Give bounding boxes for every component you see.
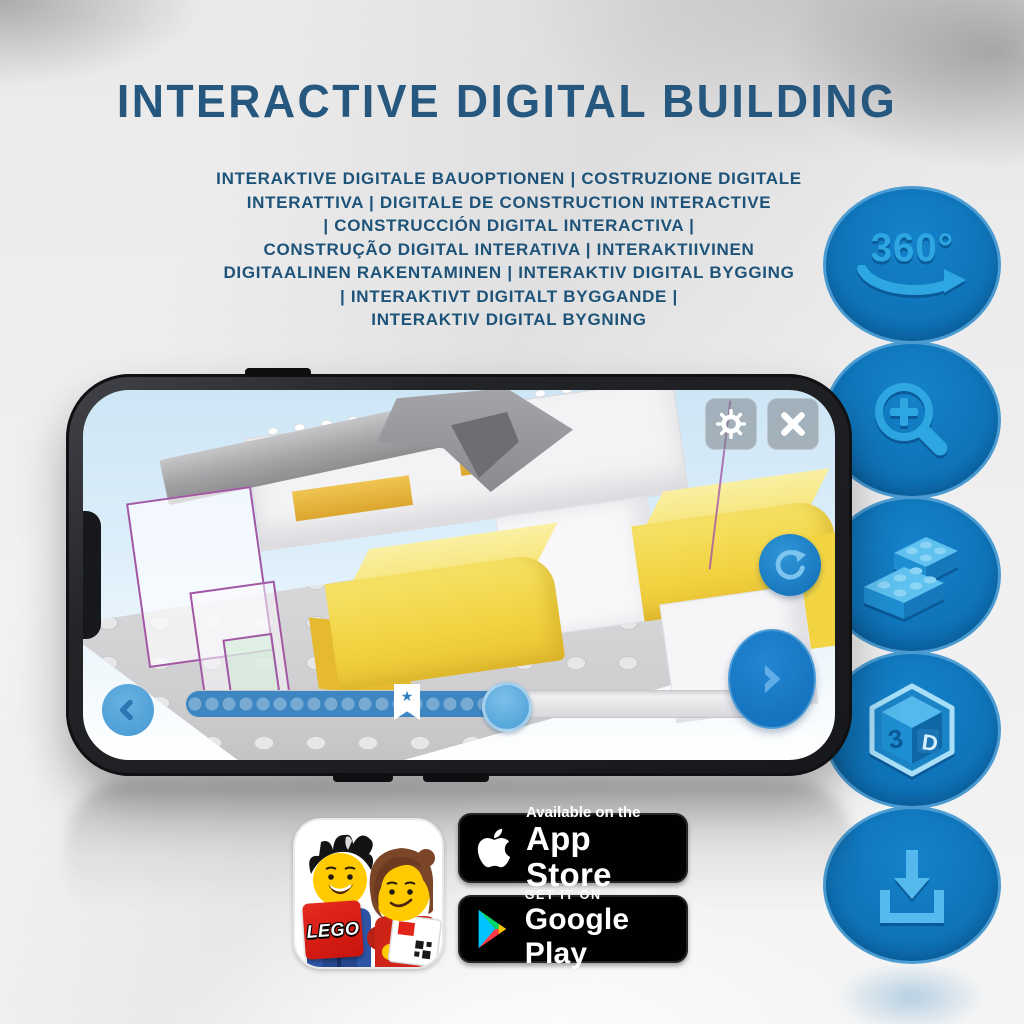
build-progress-slider[interactable]: ★ (185, 690, 762, 718)
feature-360-rotation: 360° (823, 186, 1001, 344)
next-chevron-icon (755, 660, 789, 698)
apple-icon (476, 826, 512, 870)
feature-reflection (836, 962, 986, 1024)
brick-building-icon (860, 529, 964, 621)
google-play-tagline: GET IT ON (525, 888, 686, 903)
google-play-name: Google Play (525, 903, 686, 971)
app-screen: ★ (83, 390, 835, 760)
phone-notch (83, 511, 101, 639)
camera-icon (83, 569, 84, 576)
phone-power-button (245, 368, 311, 377)
close-icon (779, 410, 807, 438)
refresh-icon (771, 546, 809, 584)
back-chevron-icon (115, 697, 141, 723)
3d-view-icon: 3 D (863, 681, 961, 779)
slider-handle[interactable] (482, 682, 532, 732)
google-play-icon (474, 906, 511, 952)
lego-logo: LEGO (302, 900, 364, 960)
refresh-button[interactable] (759, 534, 821, 596)
previous-step-button[interactable] (102, 684, 154, 736)
slider-fill (186, 691, 502, 717)
app-store-tagline: Available on the (526, 804, 686, 821)
360-rotation-icon (856, 265, 968, 299)
marketing-image: INTERACTIVE DIGITAL BUILDING INTERAKTIVE… (0, 0, 1024, 1024)
lego-app-icon[interactable]: LEGO (293, 818, 444, 969)
download-icon (865, 838, 959, 932)
subtitle-line: INTERAKTIVE DIGITALE BAUOPTIONEN | COSTR… (0, 167, 1018, 191)
360-label: 360° (870, 231, 953, 265)
page-title: INTERACTIVE DIGITAL BUILDING (15, 74, 999, 128)
app-store-badge[interactable]: Available on the App Store (458, 813, 688, 883)
phone-mockup: ★ (66, 374, 852, 776)
gear-icon (715, 408, 747, 440)
next-step-button[interactable] (728, 629, 816, 729)
google-play-badge[interactable]: GET IT ON Google Play (458, 895, 688, 963)
app-store-name: App Store (526, 821, 686, 893)
close-button[interactable] (767, 398, 819, 450)
model-yellow-shelf (292, 475, 413, 521)
settings-button[interactable] (705, 398, 757, 450)
lego-logo-text: LEGO (306, 918, 360, 943)
zoom-in-icon (866, 374, 958, 466)
